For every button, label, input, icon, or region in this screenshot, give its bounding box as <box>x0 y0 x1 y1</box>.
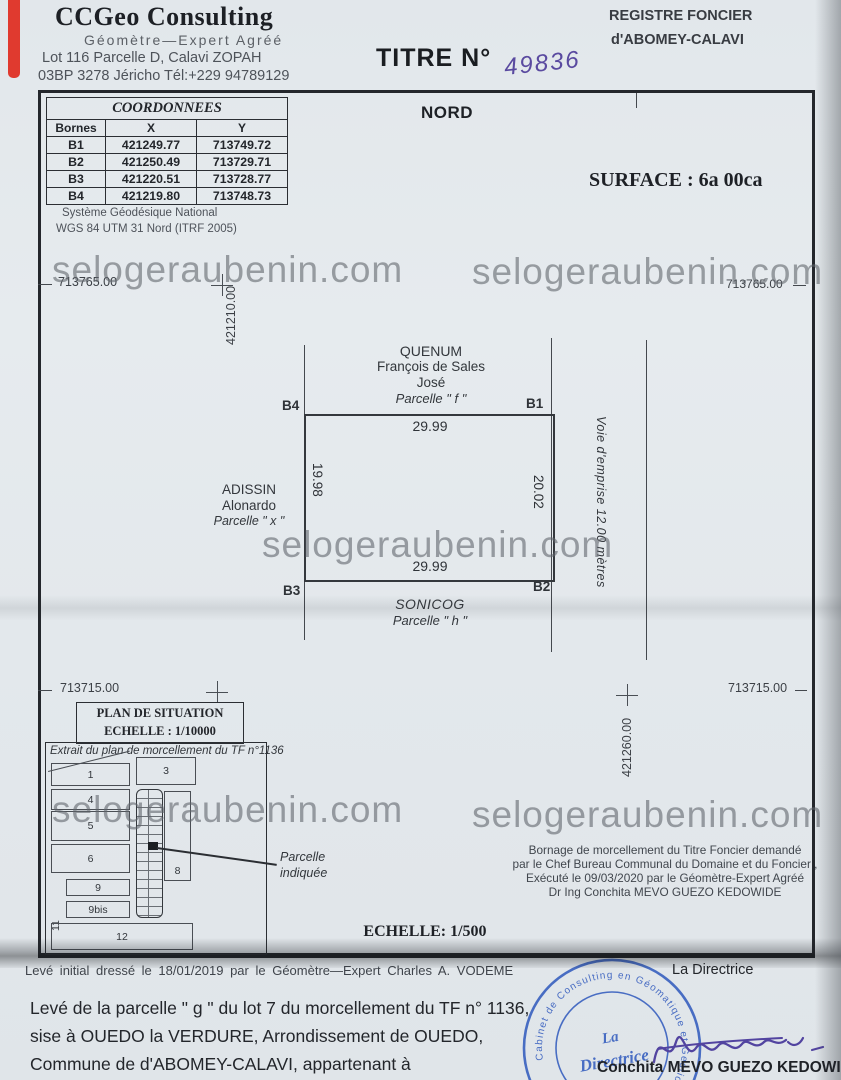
parcel-boundary <box>304 414 555 582</box>
grid-northing-se: 713715.00 <box>728 681 787 695</box>
firm-address-line2: 03BP 3278 Jéricho Tél:+229 94789129 <box>38 68 289 84</box>
bornage-note-line4: Dr Ing Conchita MEVO GUEZO KEDOWIDE <box>500 885 830 899</box>
lot-label: 3 <box>163 765 169 777</box>
table-row: B2 421250.49 713729.71 <box>47 154 288 171</box>
neighbor-north-line2: François de Sales <box>350 359 512 374</box>
footer-paragraph-line3: Commune de d'ABOMEY-CALAVI, appartenant … <box>30 1054 411 1075</box>
situation-scale: ECHELLE : 1/10000 <box>77 723 243 741</box>
col-y: Y <box>197 120 288 137</box>
scanned-land-title-document: CCGeo Consulting Géomètre—Expert Agréé L… <box>0 0 841 1080</box>
lot-label: 6 <box>88 853 94 865</box>
pointer-label-line1: Parcelle <box>280 850 325 864</box>
situation-lot: 6 <box>51 844 130 873</box>
situation-lot: 4 <box>51 789 130 810</box>
situation-title: PLAN DE SITUATION <box>77 705 243 723</box>
titre-label: TITRE N° <box>376 44 491 73</box>
stamp-center-line1: La <box>600 1029 621 1048</box>
table-row: B3 421220.51 713728.77 <box>47 171 288 188</box>
geodesy-note-line1: Système Géodésique National <box>62 207 217 219</box>
coordinates-title: COORDONNEES <box>47 98 288 120</box>
table-row: B1 421249.77 713749.72 <box>47 137 288 154</box>
corner-label-b3: B3 <box>283 583 300 598</box>
situation-lot7-strip <box>136 789 163 918</box>
lot-label: 1 <box>88 769 94 781</box>
corner-label-b2: B2 <box>533 579 550 594</box>
borne-x: 421249.77 <box>106 137 197 154</box>
neighbor-north-parcel: Parcelle " f " <box>350 391 512 406</box>
situation-lot: 9bis <box>66 901 130 918</box>
dim-right: 20.02 <box>531 475 546 509</box>
surface-label: SURFACE : 6a 00ca <box>589 169 763 192</box>
grid-tick <box>795 690 807 691</box>
frame-top-tick <box>636 93 637 108</box>
road-label: Voie d'emprise 12.00 mètres <box>594 416 608 588</box>
situation-extract-note: Extrait du plan de morcellement du TF n°… <box>50 745 284 757</box>
neighbor-north-line3: José <box>350 375 512 390</box>
situation-lot: 5 <box>51 811 130 841</box>
dim-bottom: 29.99 <box>390 558 470 574</box>
situation-lot: 9 <box>66 879 130 896</box>
bornage-note-line1: Bornage de morcellement du Titre Foncier… <box>500 843 830 857</box>
firm-subtitle: Géomètre—Expert Agréé <box>84 32 283 48</box>
grid-cross-se <box>616 684 638 706</box>
lot-label: 12 <box>116 931 128 943</box>
firm-address-line1: Lot 116 Parcelle D, Calavi ZOPAH <box>42 50 261 66</box>
situation-title-box: PLAN DE SITUATION ECHELLE : 1/10000 <box>76 702 244 744</box>
borne-y: 713748.73 <box>197 188 288 205</box>
table-row: B4 421219.80 713748.73 <box>47 188 288 205</box>
initial-survey-note: Levé initial dressé le 18/01/2019 par le… <box>25 963 513 978</box>
bornage-note-line2: par le Chef Bureau Communal du Domaine e… <box>500 857 830 871</box>
neighbor-south-parcel: Parcelle " h " <box>360 613 500 628</box>
grid-tick <box>38 284 52 285</box>
footer-paragraph-line1: Levé de la parcelle " g " du lot 7 du mo… <box>30 998 529 1019</box>
grid-tick <box>793 285 806 286</box>
footer-paragraph-line2: sise à OUEDO la VERDURE, Arrondissement … <box>30 1026 483 1047</box>
pointer-label-line2: indiquée <box>280 866 327 880</box>
grid-cross-sw <box>206 681 228 703</box>
grid-northing-ne: 713765.00 <box>726 277 783 291</box>
geodesy-note-line2: WGS 84 UTM 31 Nord (ITRF 2005) <box>56 223 237 235</box>
dim-top: 29.99 <box>390 418 470 434</box>
situation-lot: 12 <box>51 923 193 950</box>
registre-line1: REGISTRE FONCIER <box>609 8 752 24</box>
titre-number-handwritten: 49836 <box>503 46 582 82</box>
dim-left: 19.98 <box>310 463 325 497</box>
lot-label: 5 <box>88 820 94 832</box>
situation-lot: 3 <box>136 757 196 785</box>
coordinates-table: COORDONNEES Bornes X Y B1 421249.77 7137… <box>46 97 288 205</box>
neighbor-south-line1: SONICOG <box>360 596 500 612</box>
neighbor-west-parcel: Parcelle " x " <box>195 514 303 528</box>
lot-label: 9bis <box>88 904 107 916</box>
road-east-line <box>646 340 647 660</box>
col-x: X <box>106 120 197 137</box>
borne-x: 421220.51 <box>106 171 197 188</box>
borne-x: 421250.49 <box>106 154 197 171</box>
lot-label: 9 <box>95 882 101 894</box>
grid-easting-top: 421210.00 <box>224 286 238 345</box>
signer-name: Conchita MEVO GUEZO KEDOWIDE <box>597 1059 841 1077</box>
borne-id: B4 <box>47 188 106 205</box>
registre-line2: d'ABOMEY-CALAVI <box>611 32 744 48</box>
borne-y: 713749.72 <box>197 137 288 154</box>
north-label: NORD <box>421 103 473 123</box>
situation-lot: 8 <box>164 791 191 881</box>
scale-label: ECHELLE: 1/500 <box>330 923 520 941</box>
red-edge-mark <box>8 0 20 78</box>
borne-id: B2 <box>47 154 106 171</box>
lot-label: 4 <box>88 794 94 806</box>
corner-label-b1: B1 <box>526 396 543 411</box>
grid-northing-nw: 713765.00 <box>58 275 117 289</box>
situation-lot: 1 <box>51 763 130 786</box>
firm-name: CCGeo Consulting <box>55 2 273 32</box>
col-bornes: Bornes <box>47 120 106 137</box>
lot-label: 8 <box>175 865 181 877</box>
right-edge-shadow <box>815 0 841 1080</box>
grid-easting-bottom: 421260.00 <box>620 718 634 777</box>
grid-tick <box>38 690 52 691</box>
borne-id: B1 <box>47 137 106 154</box>
bornage-note-line3: Exécuté le 09/03/2020 par le Géomètre-Ex… <box>500 871 830 885</box>
neighbor-west-line1: ADISSIN <box>195 482 303 497</box>
neighbor-west-line2: Alonardo <box>195 498 303 513</box>
borne-id: B3 <box>47 171 106 188</box>
borne-x: 421219.80 <box>106 188 197 205</box>
grid-northing-sw: 713715.00 <box>60 681 119 695</box>
corner-label-b4: B4 <box>282 398 299 413</box>
borne-y: 713729.71 <box>197 154 288 171</box>
borne-y: 713728.77 <box>197 171 288 188</box>
neighbor-north-line1: QUENUM <box>350 343 512 359</box>
